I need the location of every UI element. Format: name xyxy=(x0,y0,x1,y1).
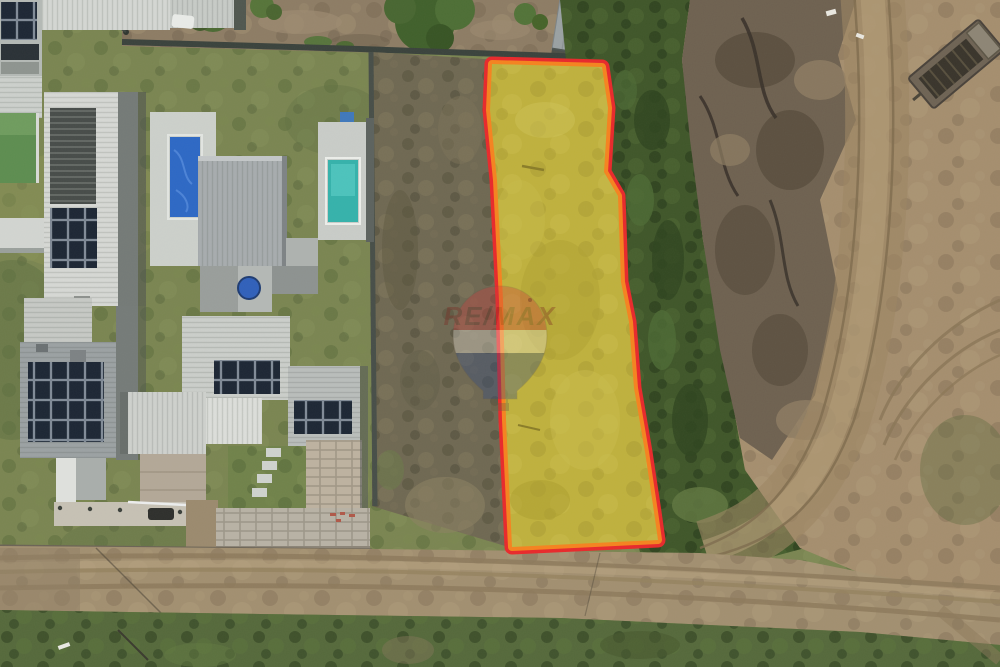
aerial-photo: Top-down drone photo of a vacant residen… xyxy=(0,0,1000,667)
aerial-photo-canvas: Top-down drone photo of a vacant residen… xyxy=(0,0,1000,667)
photo-grain-overlay xyxy=(0,0,1000,667)
